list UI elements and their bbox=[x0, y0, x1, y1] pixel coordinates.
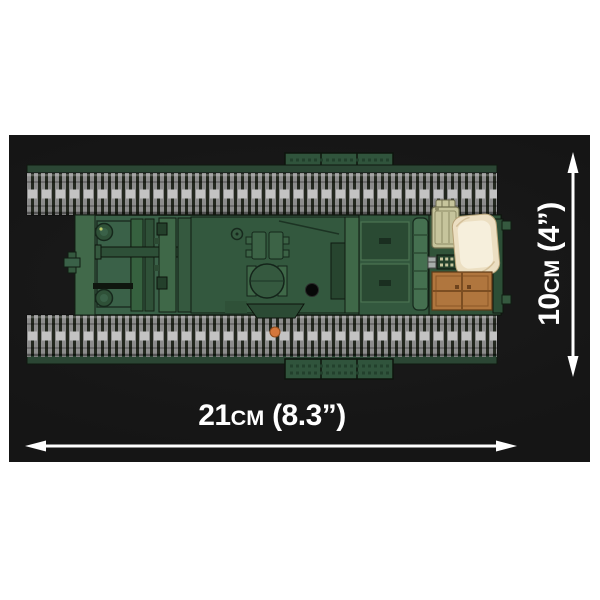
storage-crate bbox=[432, 272, 492, 310]
length-imperial: (8.3”) bbox=[272, 399, 346, 432]
height-unit: cm bbox=[539, 260, 564, 294]
length-arrow bbox=[25, 439, 517, 457]
product-dimension-image: 21cm (8.3”) 10cm (4”) bbox=[0, 0, 600, 600]
gun-mantlet bbox=[154, 218, 191, 312]
part-marker-dot bbox=[270, 327, 280, 337]
height-imperial: (4”) bbox=[533, 202, 566, 252]
air-intake-pipe bbox=[413, 218, 428, 310]
hull-cross-member bbox=[345, 217, 359, 313]
sandbag bbox=[451, 213, 500, 277]
periscope-dot bbox=[306, 284, 319, 297]
track-bottom bbox=[27, 315, 497, 364]
bottom-edge-plate bbox=[285, 359, 393, 379]
height-arrow bbox=[567, 152, 579, 382]
height-value: 10 bbox=[533, 293, 566, 325]
gun-barrel bbox=[95, 245, 191, 259]
length-value: 21 bbox=[198, 399, 230, 432]
height-label: 10cm (4”) bbox=[533, 114, 567, 414]
length-unit: cm bbox=[231, 405, 265, 430]
commander-hatch-ring bbox=[247, 264, 287, 298]
track-top bbox=[27, 165, 497, 215]
length-label: 21cm (8.3”) bbox=[92, 399, 452, 435]
turret bbox=[191, 217, 359, 318]
